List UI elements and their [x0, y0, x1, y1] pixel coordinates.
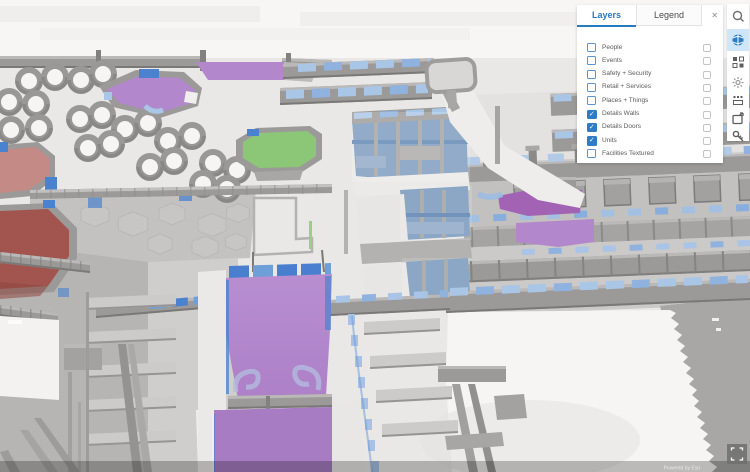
svg-text:Powered by Esri: Powered by Esri	[664, 466, 700, 472]
